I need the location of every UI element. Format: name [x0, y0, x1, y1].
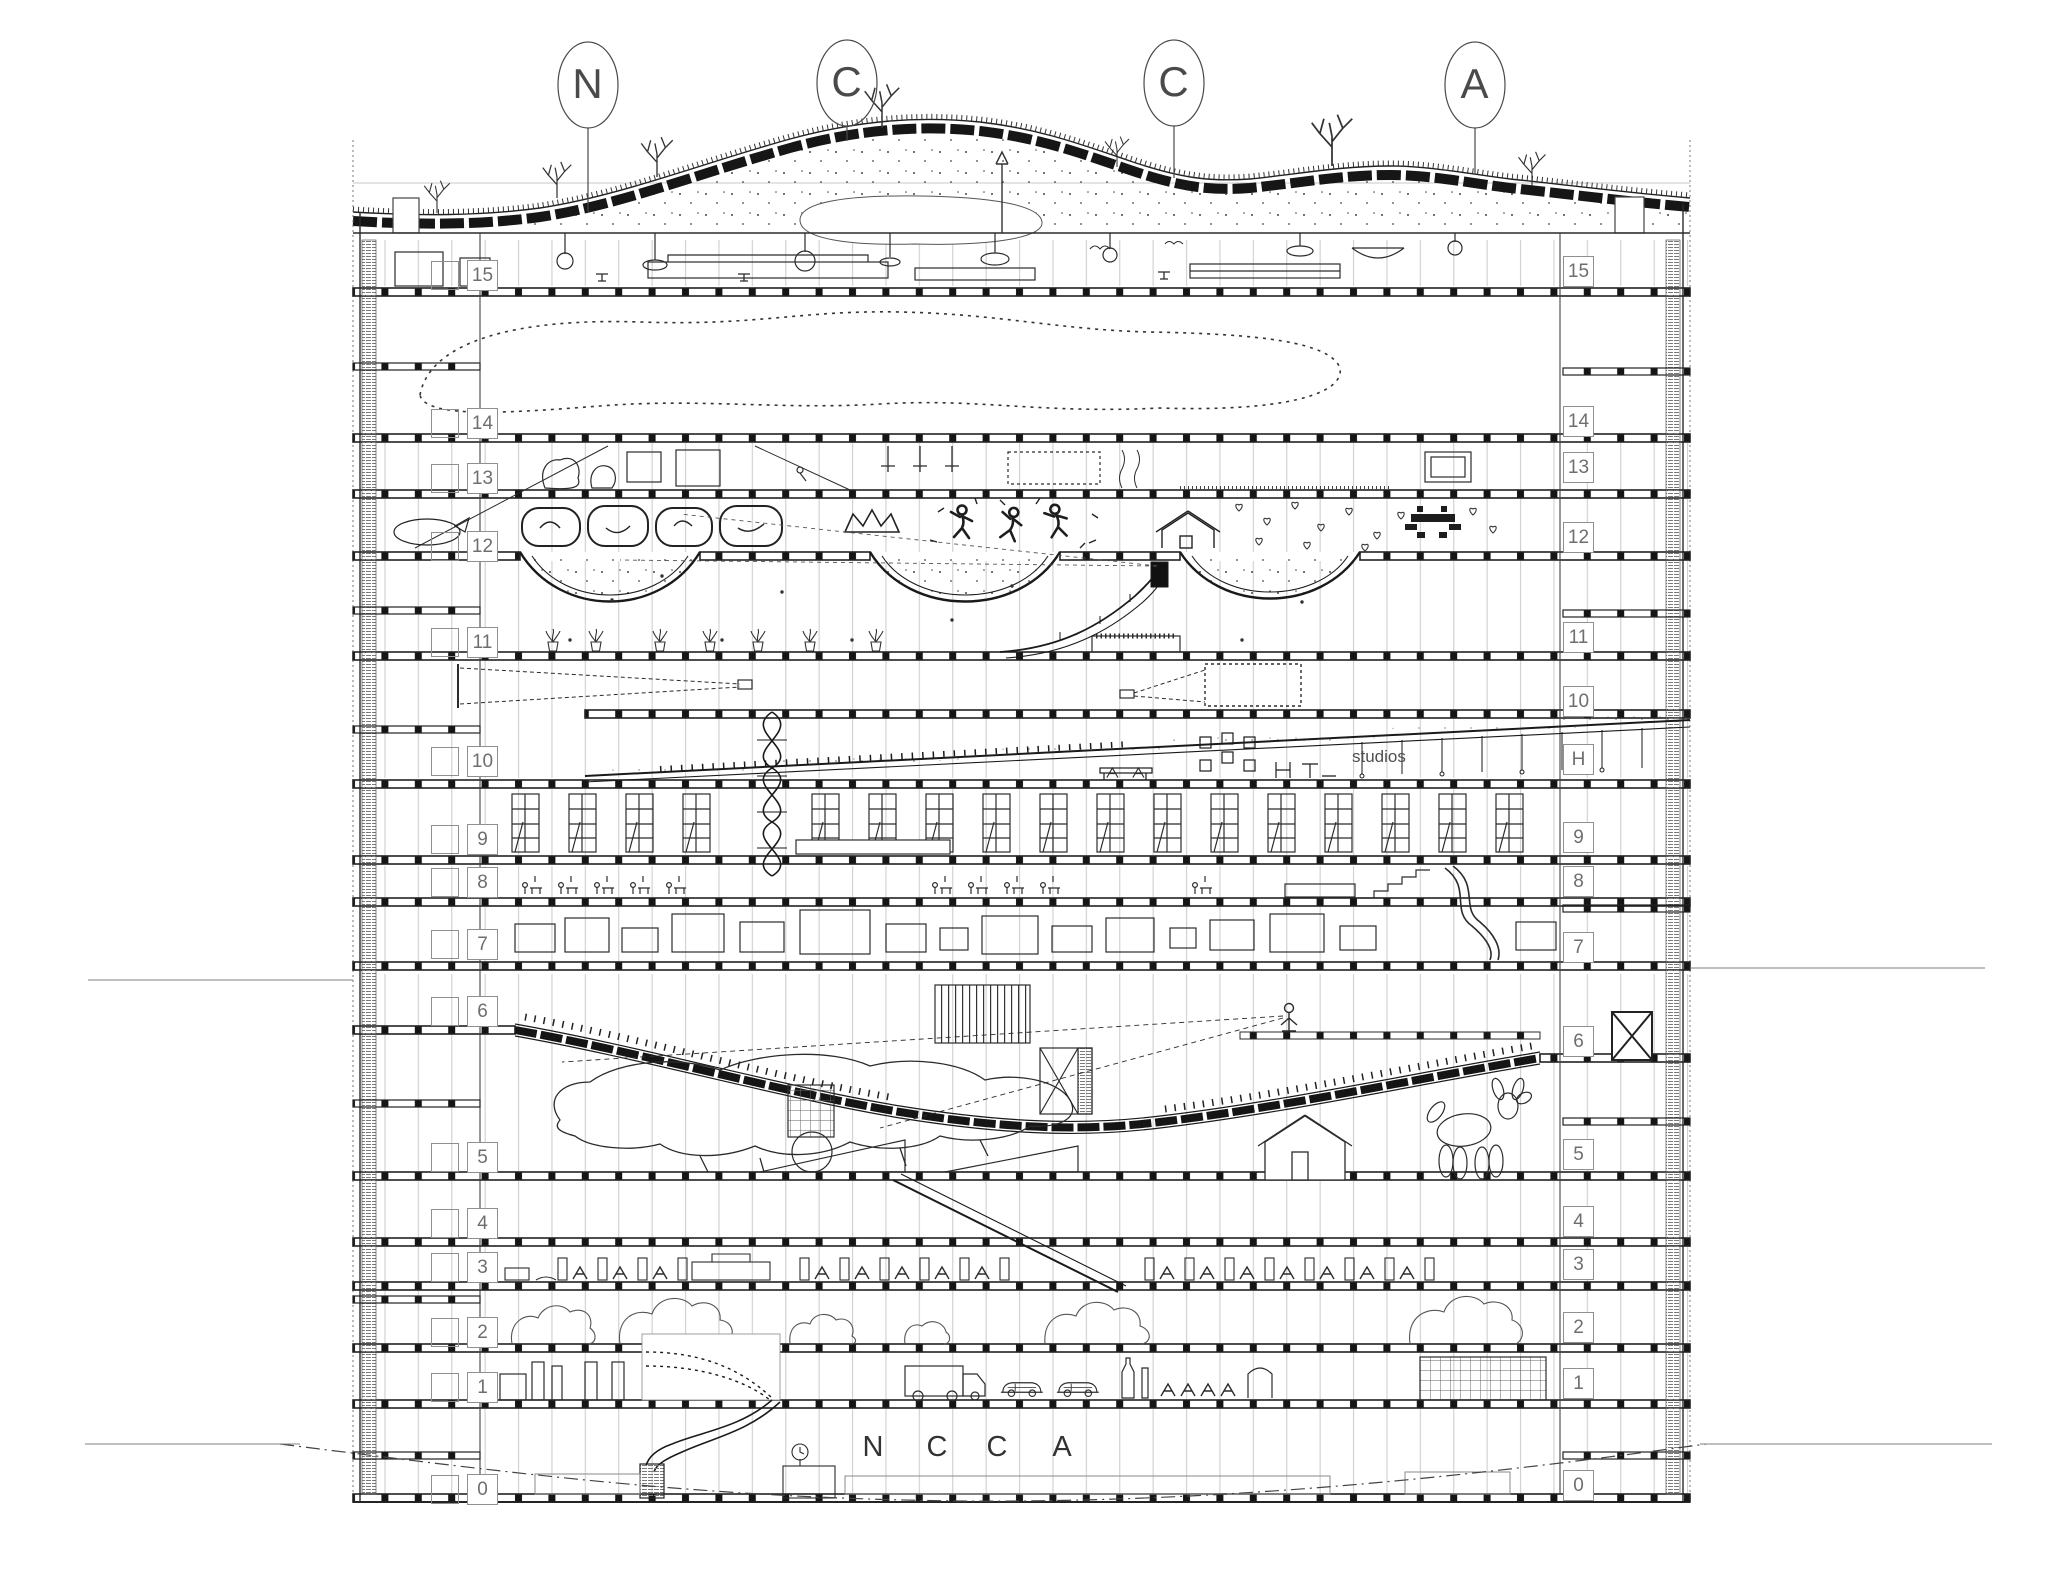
floor-label-left: 12	[431, 531, 498, 562]
floor-label-left: 15	[431, 260, 498, 291]
grid-bubble-letter: C	[817, 58, 877, 106]
column-grid-lines	[353, 240, 1690, 1493]
floor-label-right: 2	[1563, 1312, 1594, 1343]
brick-wall	[1420, 1357, 1546, 1400]
floor-label-left: 0	[431, 1474, 498, 1505]
floor-label-right: 11	[1563, 622, 1594, 653]
floor-label-left: 13	[431, 463, 498, 494]
grid-bubble-letter: N	[558, 60, 618, 108]
lobby-sign-letter: A	[1045, 1431, 1079, 1464]
lobby-sign-letter: C	[980, 1431, 1014, 1464]
floor-label-left: 7	[431, 929, 498, 960]
floor-marker-square	[431, 930, 459, 959]
floor-label-left: 10	[431, 746, 498, 777]
floor-label-right: 9	[1563, 822, 1594, 853]
floor-label-left: 11	[431, 627, 498, 658]
floor-label-left: 5	[431, 1142, 498, 1173]
roof-skylight-blob	[800, 196, 1042, 244]
floor-marker-square	[431, 1373, 459, 1402]
lobby-sign-letter: N	[856, 1431, 890, 1464]
floor-marker-square	[431, 997, 459, 1026]
floor-14-void	[420, 312, 1340, 412]
floor-label-left: 8	[431, 867, 498, 898]
ncca-section-page: N C C A N C C A studios 15 14 13 12 11 1…	[0, 0, 2048, 1582]
floor-marker-square	[431, 1475, 459, 1504]
floor-label-right: 0	[1563, 1470, 1594, 1501]
lobby-sign-letter: C	[920, 1431, 954, 1464]
floor-marker-square	[431, 261, 459, 290]
floor-label-right: 3	[1563, 1249, 1594, 1280]
grid-bubble-letter: C	[1144, 58, 1204, 106]
floor-label-left: 3	[431, 1252, 498, 1283]
floor-label-right: 8	[1563, 866, 1594, 897]
entrance-x-box	[1612, 1012, 1652, 1060]
floor-marker-square	[431, 409, 459, 438]
floor-label-right: 4	[1563, 1206, 1594, 1237]
floor-label-right: 10	[1563, 686, 1594, 717]
section-drawing	[0, 0, 2048, 1582]
floor-label-right: 5	[1563, 1139, 1594, 1170]
floor-label-left: 4	[431, 1208, 498, 1239]
floor-label-right: 14	[1563, 406, 1594, 437]
floor-label-left: 9	[431, 824, 498, 855]
floor-marker-square	[431, 1143, 459, 1172]
studios-annotation: studios	[1352, 747, 1406, 767]
floor-marker-square	[431, 825, 459, 854]
floor-label-left: 1	[431, 1372, 498, 1403]
floor-marker-square	[431, 628, 459, 657]
floor-label-right: 13	[1563, 452, 1594, 483]
hanging-screen	[935, 985, 1030, 1043]
floor-label-right: 7	[1563, 932, 1594, 963]
floor-marker-square	[431, 1253, 459, 1282]
floor-label-right: 15	[1563, 256, 1594, 287]
floor-label-right: 6	[1563, 1026, 1594, 1057]
floor-label-right: 1	[1563, 1368, 1594, 1399]
floor-label-left: 6	[431, 996, 498, 1027]
floor-label-right: 12	[1563, 522, 1594, 553]
floor-marker-square	[431, 747, 459, 776]
skate-bowls	[520, 552, 1360, 602]
floor-label-right: H	[1563, 744, 1594, 775]
floor-label-left: 2	[431, 1317, 498, 1348]
floor-marker-square	[431, 1318, 459, 1347]
floor-label-left: 14	[431, 408, 498, 439]
green-roof	[353, 84, 1690, 244]
floor-marker-square	[431, 464, 459, 493]
grid-bubble-letter: A	[1445, 60, 1505, 108]
floor-marker-square	[431, 532, 459, 561]
floor-marker-square	[431, 868, 459, 897]
floor-marker-square	[431, 1209, 459, 1238]
